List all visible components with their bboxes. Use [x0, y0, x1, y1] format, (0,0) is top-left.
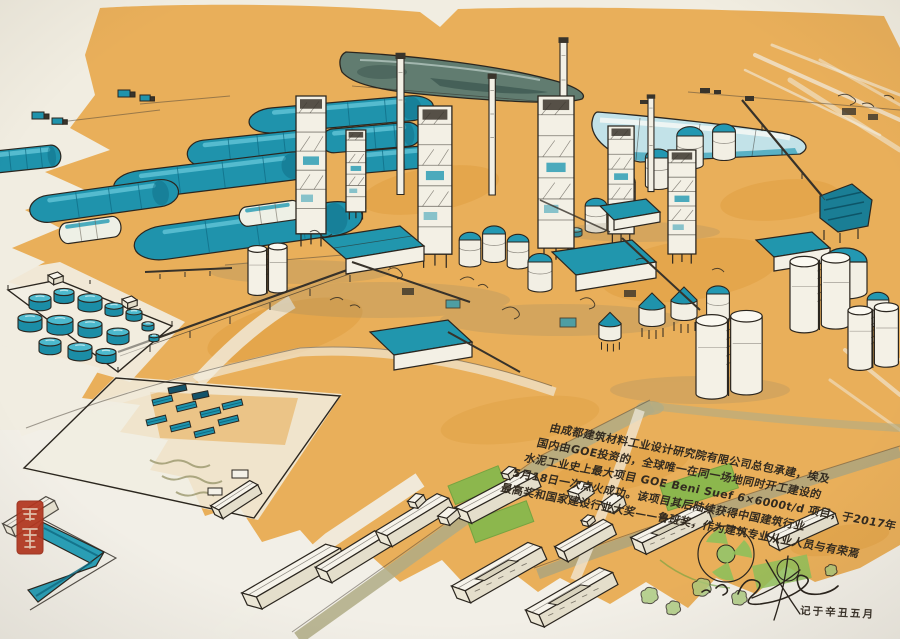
- vignette: [0, 0, 900, 639]
- painting-canvas: 由成都建筑材料工业设计研究院有限公司总包承建，埃及 国内由GOE投资的，全球唯一…: [0, 0, 900, 639]
- watercolor-painting: 由成都建筑材料工业设计研究院有限公司总包承建，埃及 国内由GOE投资的，全球唯一…: [0, 0, 900, 639]
